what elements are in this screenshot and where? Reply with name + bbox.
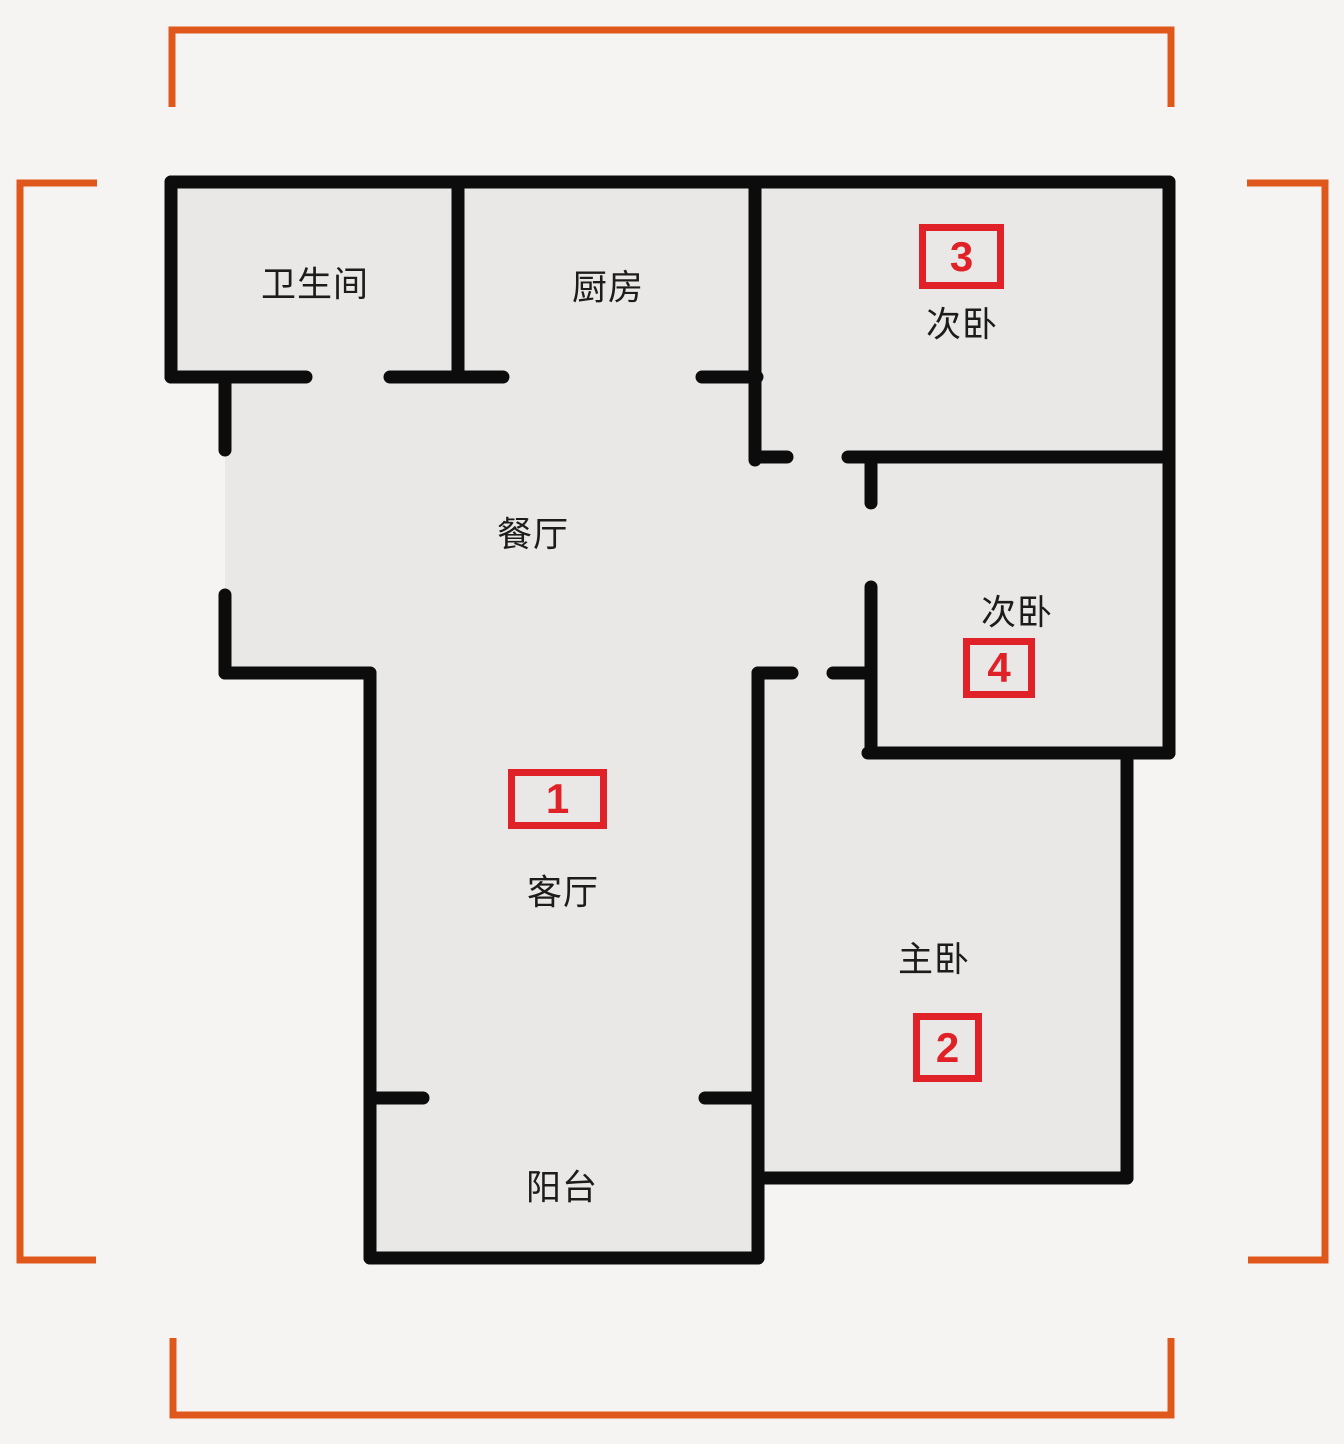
room-label-bedroom-middle-right: 次卧 — [981, 585, 1053, 636]
room-label-kitchen: 厨房 — [572, 260, 644, 311]
room-label-bedroom-top-right: 次卧 — [926, 297, 998, 348]
room-label-bathroom: 卫生间 — [261, 257, 369, 308]
bracket-left — [20, 183, 97, 1260]
floorplan-canvas: 卫生间 厨房 次卧 餐厅 次卧 客厅 主卧 阳台 1 2 3 4 — [0, 0, 1344, 1444]
bracket-right — [1247, 183, 1325, 1260]
floor-area-shape — [171, 182, 1169, 1258]
bracket-bottom — [173, 1338, 1171, 1415]
floorplan-drawing — [0, 0, 1344, 1444]
marker-box-2[interactable]: 2 — [913, 1013, 982, 1082]
marker-box-3[interactable]: 3 — [919, 224, 1004, 289]
bracket-top — [172, 30, 1171, 107]
room-label-dining: 餐厅 — [497, 507, 569, 558]
room-label-master: 主卧 — [898, 932, 970, 983]
marker-box-4[interactable]: 4 — [963, 638, 1035, 698]
room-label-balcony: 阳台 — [526, 1160, 598, 1211]
marker-box-1[interactable]: 1 — [508, 769, 607, 829]
room-label-living: 客厅 — [527, 865, 599, 916]
